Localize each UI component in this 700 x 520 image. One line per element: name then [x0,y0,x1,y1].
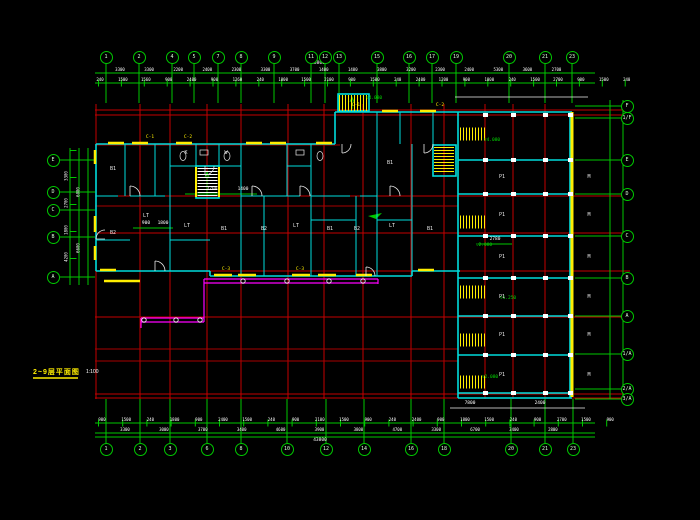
dimension-text: 3900 [315,427,325,432]
dimension-text: 6000 [76,187,81,197]
drawing-scale: 1:100 [86,369,99,375]
annotation-text: P1 [499,174,505,180]
dimension-text: 900 [607,417,614,422]
dimension-text: 1800 [170,417,180,422]
column-marker [511,314,516,318]
entrance-arrow-icon [368,213,382,219]
dimension-text: 900 [365,417,372,422]
dimension-text: 2700 [64,198,69,208]
axis-bubble-top: 13 [333,51,346,64]
dimension-text: 3300 [120,427,130,432]
column-marker [511,276,516,280]
axis-bubble-bottom: 14 [358,443,371,456]
column-marker [483,353,488,357]
axis-bubble-left: E [47,154,60,167]
dimension-text: 3300 [261,67,271,72]
axis-bubble-top: 23 [566,51,579,64]
axis-bubble-bottom: 23 [567,443,580,456]
axis-bubble-top: 12 [319,51,332,64]
dimension-text: 1500 [530,77,540,82]
annotation-text: B1 [387,160,393,166]
annotation-text: B1 [221,226,227,232]
dimension-text: 3000 [159,427,169,432]
dimension-text: 3800 [354,427,364,432]
dimension-text: 3400 [509,427,519,432]
column-marker [568,113,573,117]
annotation-text: LT [143,213,149,219]
axis-bubble-bottom: 3 [164,443,177,456]
axis-bubble-top: 17 [426,51,439,64]
dimension-text: 3700 [198,427,208,432]
dimension-text: 900 [437,417,444,422]
dimension-text: 900 [292,417,299,422]
dimension-text: 2700 [557,417,567,422]
dimension-text: 3700 [290,67,300,72]
annotation-text: P1 [499,294,505,300]
annotation-text: B1 [110,166,116,172]
axis-bubble-right: 3/A [621,393,634,406]
dimension-text: 1500 [339,417,349,422]
dimension-text: 2300 [232,67,242,72]
axis-bubble-right: E [621,154,634,167]
annotation-text: C-1 [352,103,360,108]
axis-bubble-bottom: 18 [438,443,451,456]
axis-bubble-top: 5 [188,51,201,64]
axis-bubble-top: 19 [450,51,463,64]
dimension-text: 1200 [439,77,449,82]
dimension-text: 3800 [377,67,387,72]
column-marker [568,276,573,280]
dimension-text: 1400 [319,67,329,72]
dimension-text: 240 [268,417,275,422]
annotation-text: K [184,150,187,156]
dimension-text: 4700 [392,427,402,432]
dimension-text: 6600 [76,243,81,253]
dimension-text: 240 [394,77,401,82]
column-marker [543,113,548,117]
annotation-text: B2 [110,230,116,236]
dimension-text: 2400 [202,67,212,72]
column-marker [511,353,516,357]
dimension-text: 3300 [144,67,154,72]
annotation-text: 2700 [207,187,218,192]
dimension-text: 1500 [581,417,591,422]
axis-bubble-top: 21 [539,51,552,64]
dimension-text: 2800 [548,427,558,432]
annotation-text: LT [184,223,190,229]
axis-bubble-top: 1 [100,51,113,64]
axis-bubble-left: B [47,231,60,244]
dimension-text: 2400 [464,67,474,72]
annotation-text: ▽2.080 [482,375,498,380]
annotation-text: B1 [427,226,433,232]
dimension-text: 3200 [406,67,416,72]
balcony-rail [141,279,378,328]
axis-bubble-right: 1/F [621,112,634,125]
dimension-text: 3300 [115,67,125,72]
dimension-text: 2400 [218,417,228,422]
column-marker [511,192,516,196]
axis-bubble-top: 2 [133,51,146,64]
column-marker [568,391,573,395]
column-marker [543,192,548,196]
annotation-text: P1 [499,372,505,378]
dimension-text: 1500 [242,417,252,422]
annotation-text: C-2 [184,135,192,140]
axis-bubble-bottom: 16 [405,443,418,456]
axis-bubble-bottom: 10 [281,443,294,456]
axis-bubble-bottom: 8 [235,443,248,456]
annotation-text: B2 [354,226,360,232]
axis-bubble-top: 4 [166,51,179,64]
annotation-text: C-2 [436,103,444,108]
annotation-text: W [224,150,227,156]
axis-bubble-left: D [47,186,60,199]
cad-floorplan-canvas: 2~9层平面图 1:100 12457891112131516171920212… [0,0,700,520]
dimension-text: 2700 [553,77,563,82]
dimension-text: 240 [510,417,517,422]
column-marker [483,391,488,395]
column-marker [483,113,488,117]
dimension-text: 4200 [64,252,69,262]
column-marker [568,158,573,162]
axis-bubble-right: F [621,100,634,113]
dimension-text: 3300 [64,171,69,181]
dimension-text: 900 [165,77,172,82]
annotation-text: LT [293,223,299,229]
column-marker [568,353,573,357]
green-axis-lines [59,64,626,443]
column-marker [483,314,488,318]
dimension-text: 2400 [416,77,426,82]
column-marker [543,353,548,357]
axis-bubble-bottom: 20 [505,443,518,456]
annotation-text: M [587,372,590,378]
dimension-text: 1500 [301,77,311,82]
axis-bubble-left: C [47,204,60,217]
annotation-text: P1 [499,332,505,338]
dimension-text: 3300 [431,427,441,432]
dimension-text: 5300 [493,67,503,72]
dimension-text: 1500 [599,77,609,82]
annotation-text: M [587,332,590,338]
axis-bubble-right: B [621,272,634,285]
dimension-text: 240 [623,77,630,82]
column-marker [483,276,488,280]
axis-bubble-top: 7 [212,51,225,64]
dimension-text: 1800 [64,225,69,235]
column-marker [543,234,548,238]
annotation-text: M [587,174,590,180]
column-marker [568,192,573,196]
dimension-text: 4600 [276,427,286,432]
dimension-text: 900 [534,417,541,422]
annotation-text: 7800 [465,401,476,406]
column-marker [543,158,548,162]
dimension-text: 2300 [435,67,445,72]
annotation-text: M [587,294,590,300]
stair-hatch [196,103,572,397]
dimension-text: 240 [257,77,264,82]
dimension-text: 2100 [315,417,325,422]
dimension-text: 1500 [370,77,380,82]
dimension-text: 1800 [278,77,288,82]
dimension-text: 2200 [173,67,183,72]
column-marker [511,391,516,395]
dimension-text: 1560 [141,77,151,82]
dimension-text: 1400 [348,67,358,72]
column-marker [568,234,573,238]
annotation-text: 2400 [535,401,546,406]
dimension-text: 240 [509,77,516,82]
dimension-text: 6700 [470,427,480,432]
dimension-text: 1260 [233,77,243,82]
dimension-text: 900 [463,77,470,82]
axis-bubble-bottom: 1 [100,443,113,456]
annotation-text: 1400 [238,187,249,192]
annotation-text: M [587,212,590,218]
dimension-text: 2400 [412,417,422,422]
axis-bubble-bottom: 21 [539,443,552,456]
axis-bubble-right: C [621,230,634,243]
column-marker [511,234,516,238]
annotation-text: 2780 [490,237,501,242]
drawing-title: 2~9层平面图 [33,367,80,377]
balcony-posts [142,279,365,322]
axis-bubble-bottom: 6 [201,443,214,456]
axis-bubble-right: 1/A [621,348,634,361]
dimension-text: 1500 [121,417,131,422]
dimension-text: 2700 [552,67,562,72]
column-marker [483,234,488,238]
annotation-text: B2 [261,226,267,232]
axis-bubble-top: 16 [403,51,416,64]
dimension-text: 1500 [484,417,494,422]
dimension-text: 1800 [484,77,494,82]
axis-bubble-right: A [621,310,634,323]
dimension-text: 240 [96,77,103,82]
axis-bubble-top: 8 [235,51,248,64]
column-marker [543,391,548,395]
annotation-text: ▽4.080 [484,138,500,143]
annotation-text: M [587,254,590,260]
annotation-text: ▽2.080 [476,243,492,248]
dimension-text: 3400 [237,427,247,432]
dimension-text: 1500 [118,77,128,82]
annotation-text: ▽4.080 [366,96,382,101]
annotation-text: C-3 [222,267,230,272]
column-marker [483,158,488,162]
annotation-text: LT [389,223,395,229]
column-marker [568,314,573,318]
axis-bubble-top: 15 [371,51,384,64]
wall-lines [96,94,572,398]
axis-bubble-bottom: 2 [134,443,147,456]
axis-bubble-top: 9 [268,51,281,64]
dimension-text: 2400 [187,77,197,82]
axis-bubble-top: 11 [305,51,318,64]
dimension-text: 900 [348,77,355,82]
annotation-text: 1800 [158,221,169,226]
bath-fixtures [180,150,323,161]
column-marker [511,113,516,117]
column-marker [483,192,488,196]
annotation-text: C-1 [146,135,154,140]
annotation-text: P1 [499,254,505,260]
annotation-text: 900 [142,221,150,226]
dimension-text: 900 [195,417,202,422]
column-marker [511,158,516,162]
annotation-text: B1 [327,226,333,232]
annotation-text: C-3 [296,267,304,272]
dimension-text: 2100 [324,77,334,82]
dimension-text: 900 [98,417,105,422]
dimension-text: 240 [389,417,396,422]
axis-bubble-top: 20 [503,51,516,64]
axis-bubble-right: D [621,188,634,201]
annotation-text: P1 [499,212,505,218]
column-marker [543,276,548,280]
column-marker [543,314,548,318]
dimension-text: 900 [577,77,584,82]
dimension-text: 900 [211,77,218,82]
dimension-text: 1800 [460,417,470,422]
axis-bubble-bottom: 12 [320,443,333,456]
dimension-text: 240 [147,417,154,422]
dimension-text: 3600 [523,67,533,72]
axis-bubble-left: A [47,271,60,284]
